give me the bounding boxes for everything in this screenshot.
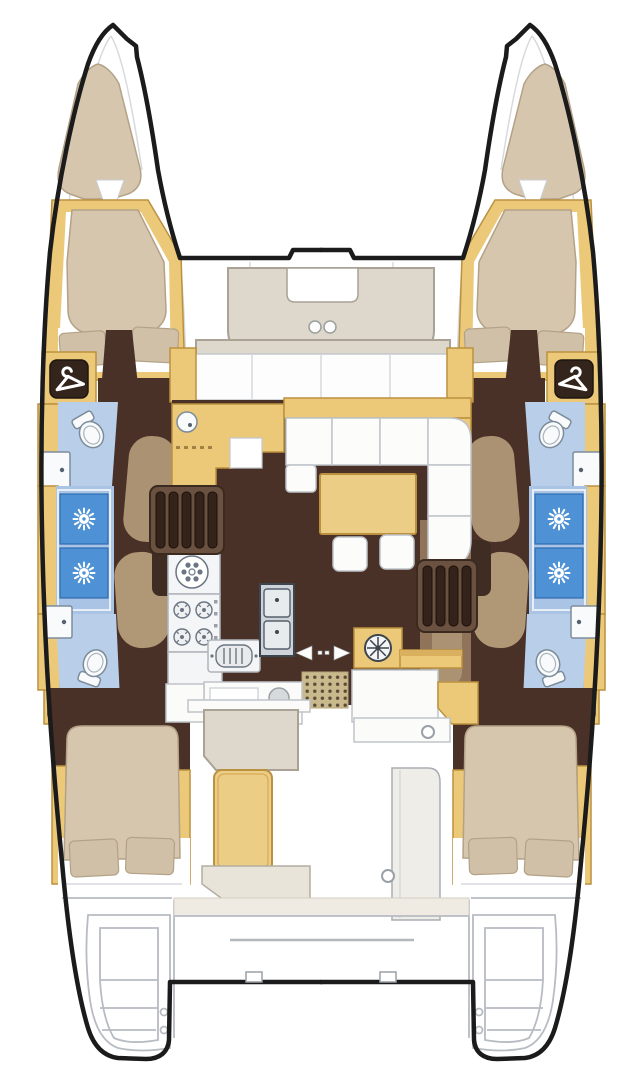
starboard-companionway-stairs bbox=[417, 560, 477, 632]
sink-icon bbox=[40, 452, 70, 488]
sofa-cushion bbox=[428, 465, 471, 516]
stool bbox=[380, 535, 414, 569]
sink-drain bbox=[60, 468, 64, 472]
transom-cleat bbox=[246, 972, 262, 982]
floor-plan-svg bbox=[0, 0, 643, 1080]
cockpit-module bbox=[392, 768, 440, 920]
counter-notch bbox=[230, 438, 262, 468]
cockpit-bench-cushion bbox=[214, 770, 272, 872]
sofa-cushion bbox=[380, 418, 428, 465]
double-sink-icon bbox=[260, 584, 294, 656]
sofa-back-sill bbox=[284, 398, 471, 418]
cup-holder-icon bbox=[324, 321, 336, 333]
burner bbox=[196, 602, 212, 618]
deck-fitting bbox=[382, 870, 394, 882]
round-sink-icon bbox=[176, 556, 208, 588]
cup-holder-icon bbox=[309, 321, 321, 333]
oven-icon bbox=[208, 640, 260, 672]
aft-berth-pillow-left bbox=[69, 839, 119, 877]
salon-table bbox=[320, 474, 416, 534]
sink-drain bbox=[62, 620, 66, 624]
window-pillar-port bbox=[170, 348, 196, 402]
forward-wardrobe-panel bbox=[50, 360, 88, 398]
sofa-arm-cushion bbox=[286, 465, 316, 492]
deck-fitting bbox=[422, 726, 434, 738]
window-pillar-starboard bbox=[447, 348, 473, 402]
round-sink-small bbox=[177, 412, 197, 432]
port-companionway-stairs bbox=[150, 486, 224, 554]
burner bbox=[174, 602, 190, 618]
sink-drain bbox=[188, 423, 192, 427]
winch-icon bbox=[365, 635, 391, 661]
burner bbox=[174, 629, 190, 645]
sink-icon bbox=[44, 606, 72, 638]
aft-deck-band bbox=[174, 898, 469, 916]
counter-ext-edge bbox=[400, 650, 462, 656]
cockpit-locker bbox=[354, 718, 450, 742]
aft-berth-pillow-right bbox=[125, 837, 174, 875]
stool bbox=[333, 537, 367, 571]
sofa-cushion bbox=[332, 418, 380, 465]
sofa-corner-cushion bbox=[428, 418, 471, 465]
door-threshold bbox=[352, 670, 438, 722]
catamaran-floor-plan bbox=[0, 0, 643, 1080]
foredeck-seat-cutout bbox=[287, 268, 358, 302]
cockpit-bench-backrest bbox=[204, 710, 298, 770]
sofa-end-cushion bbox=[428, 516, 471, 566]
transom-cleat bbox=[380, 972, 396, 982]
sofa-cushion bbox=[286, 418, 332, 465]
